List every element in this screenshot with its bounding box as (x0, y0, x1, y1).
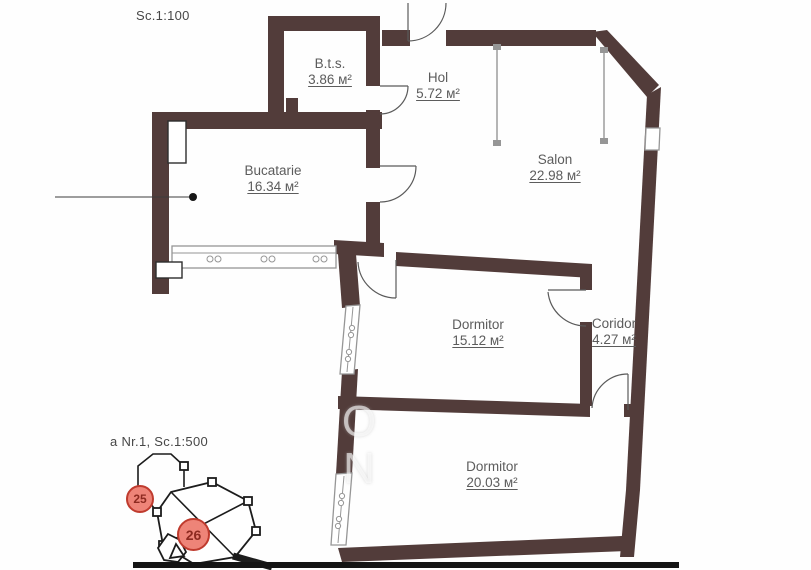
room-name: Coridor (592, 316, 636, 332)
walls (152, 16, 661, 562)
wall-coridor-left (580, 322, 592, 406)
plan-shape (600, 138, 608, 144)
plan-shape (269, 256, 275, 262)
unit-badge-label: 26 (186, 527, 202, 543)
wall-salon-top (446, 30, 596, 46)
plan-shape (215, 256, 221, 262)
bottom-baseline (133, 562, 679, 568)
kitchen-niche-detail (168, 121, 186, 163)
dormitor1-door-arc (358, 262, 396, 298)
floor-plan-drawing (0, 0, 811, 570)
room-label-bucatarie: Bucatarie 16.34 м² (244, 163, 301, 195)
wall-bedroom-divider (338, 396, 590, 417)
plan-shape (335, 523, 340, 528)
plan-shape (348, 332, 353, 337)
room-area: 3.86 м² (308, 72, 352, 88)
wall-divider-right-end (624, 404, 638, 417)
room-area: 22.98 м² (529, 168, 580, 184)
scale-label-bottom: a Nr.1, Sc.1:500 (110, 434, 208, 449)
unit-badge-26: 26 (177, 518, 210, 551)
coridor-door-arc (548, 292, 586, 326)
plan-shape (493, 44, 501, 50)
room-label-coridor: Coridor 4.27 м² (592, 316, 636, 348)
wall-entry-left (382, 30, 410, 46)
wall-bts-top (268, 16, 380, 31)
room-area: 16.34 м² (244, 179, 301, 195)
room-name: Salon (529, 152, 580, 168)
bts-door-arc (380, 86, 408, 114)
wall-bts-right-upper (366, 16, 380, 86)
dormitor2-door-arc (592, 374, 628, 408)
plan-shape (346, 349, 351, 354)
room-label-dormitor-1: Dormitor 15.12 м² (452, 317, 504, 349)
scale-label-top: Sc.1:100 (136, 8, 190, 23)
wall-bottom (338, 536, 627, 562)
plan-shape (321, 256, 327, 262)
plan-shape (336, 516, 341, 521)
kitchen-corner-step (156, 262, 182, 278)
plan-shape (208, 478, 216, 486)
room-name: Dormitor (466, 459, 518, 475)
wall-bts-left (268, 16, 284, 116)
unit-badge-25: 25 (126, 485, 154, 513)
room-name: Bucatarie (244, 163, 301, 179)
kitchen-window (172, 246, 336, 268)
plan-shape (493, 140, 501, 146)
plan-shape (313, 256, 319, 262)
plan-shape (338, 500, 343, 505)
unit-badge-label: 25 (133, 492, 146, 506)
plan-shape (153, 508, 161, 516)
room-label-bts: B.t.s. 3.86 м² (308, 56, 352, 88)
room-area: 20.03 м² (466, 475, 518, 491)
wall-salon-bottom (396, 252, 592, 278)
room-label-hol: Hol 5.72 м² (416, 70, 460, 102)
plan-shape (349, 325, 354, 330)
plan-shape (345, 356, 350, 361)
site-upper-tower (138, 454, 184, 487)
entry-door-arc (408, 3, 446, 41)
room-name: Dormitor (452, 317, 504, 333)
wall-diagonal-corner (592, 30, 659, 97)
wall-bts-step (286, 98, 298, 114)
wall-glazed-mid-post (336, 369, 358, 474)
floor-plan-canvas: Sc.1:100 a Nr.1, Sc.1:500 B.t.s. 3.86 м²… (0, 0, 811, 570)
kitchen-door-arc (380, 166, 416, 202)
leader-dot (189, 193, 197, 201)
room-area: 5.72 м² (416, 86, 460, 102)
wall-kitchen-right-lower (366, 202, 380, 244)
room-label-salon: Salon 22.98 м² (529, 152, 580, 184)
room-name: B.t.s. (308, 56, 352, 72)
wall-glazed-top-stub (338, 254, 360, 308)
plan-shape (207, 256, 213, 262)
plan-shape (261, 256, 267, 262)
salon-right-window (645, 128, 660, 150)
plan-shape (339, 493, 344, 498)
room-name: Hol (416, 70, 460, 86)
wall-kitchen-right-upper (366, 128, 380, 168)
plan-shape (252, 527, 260, 535)
room-area: 15.12 м² (452, 333, 504, 349)
room-area: 4.27 м² (592, 332, 636, 348)
room-label-dormitor-2: Dormitor 20.03 м² (466, 459, 518, 491)
plan-shape (600, 47, 608, 53)
plan-shape (180, 462, 188, 470)
wall-coridor-stub (580, 264, 592, 290)
plan-shape (244, 497, 252, 505)
